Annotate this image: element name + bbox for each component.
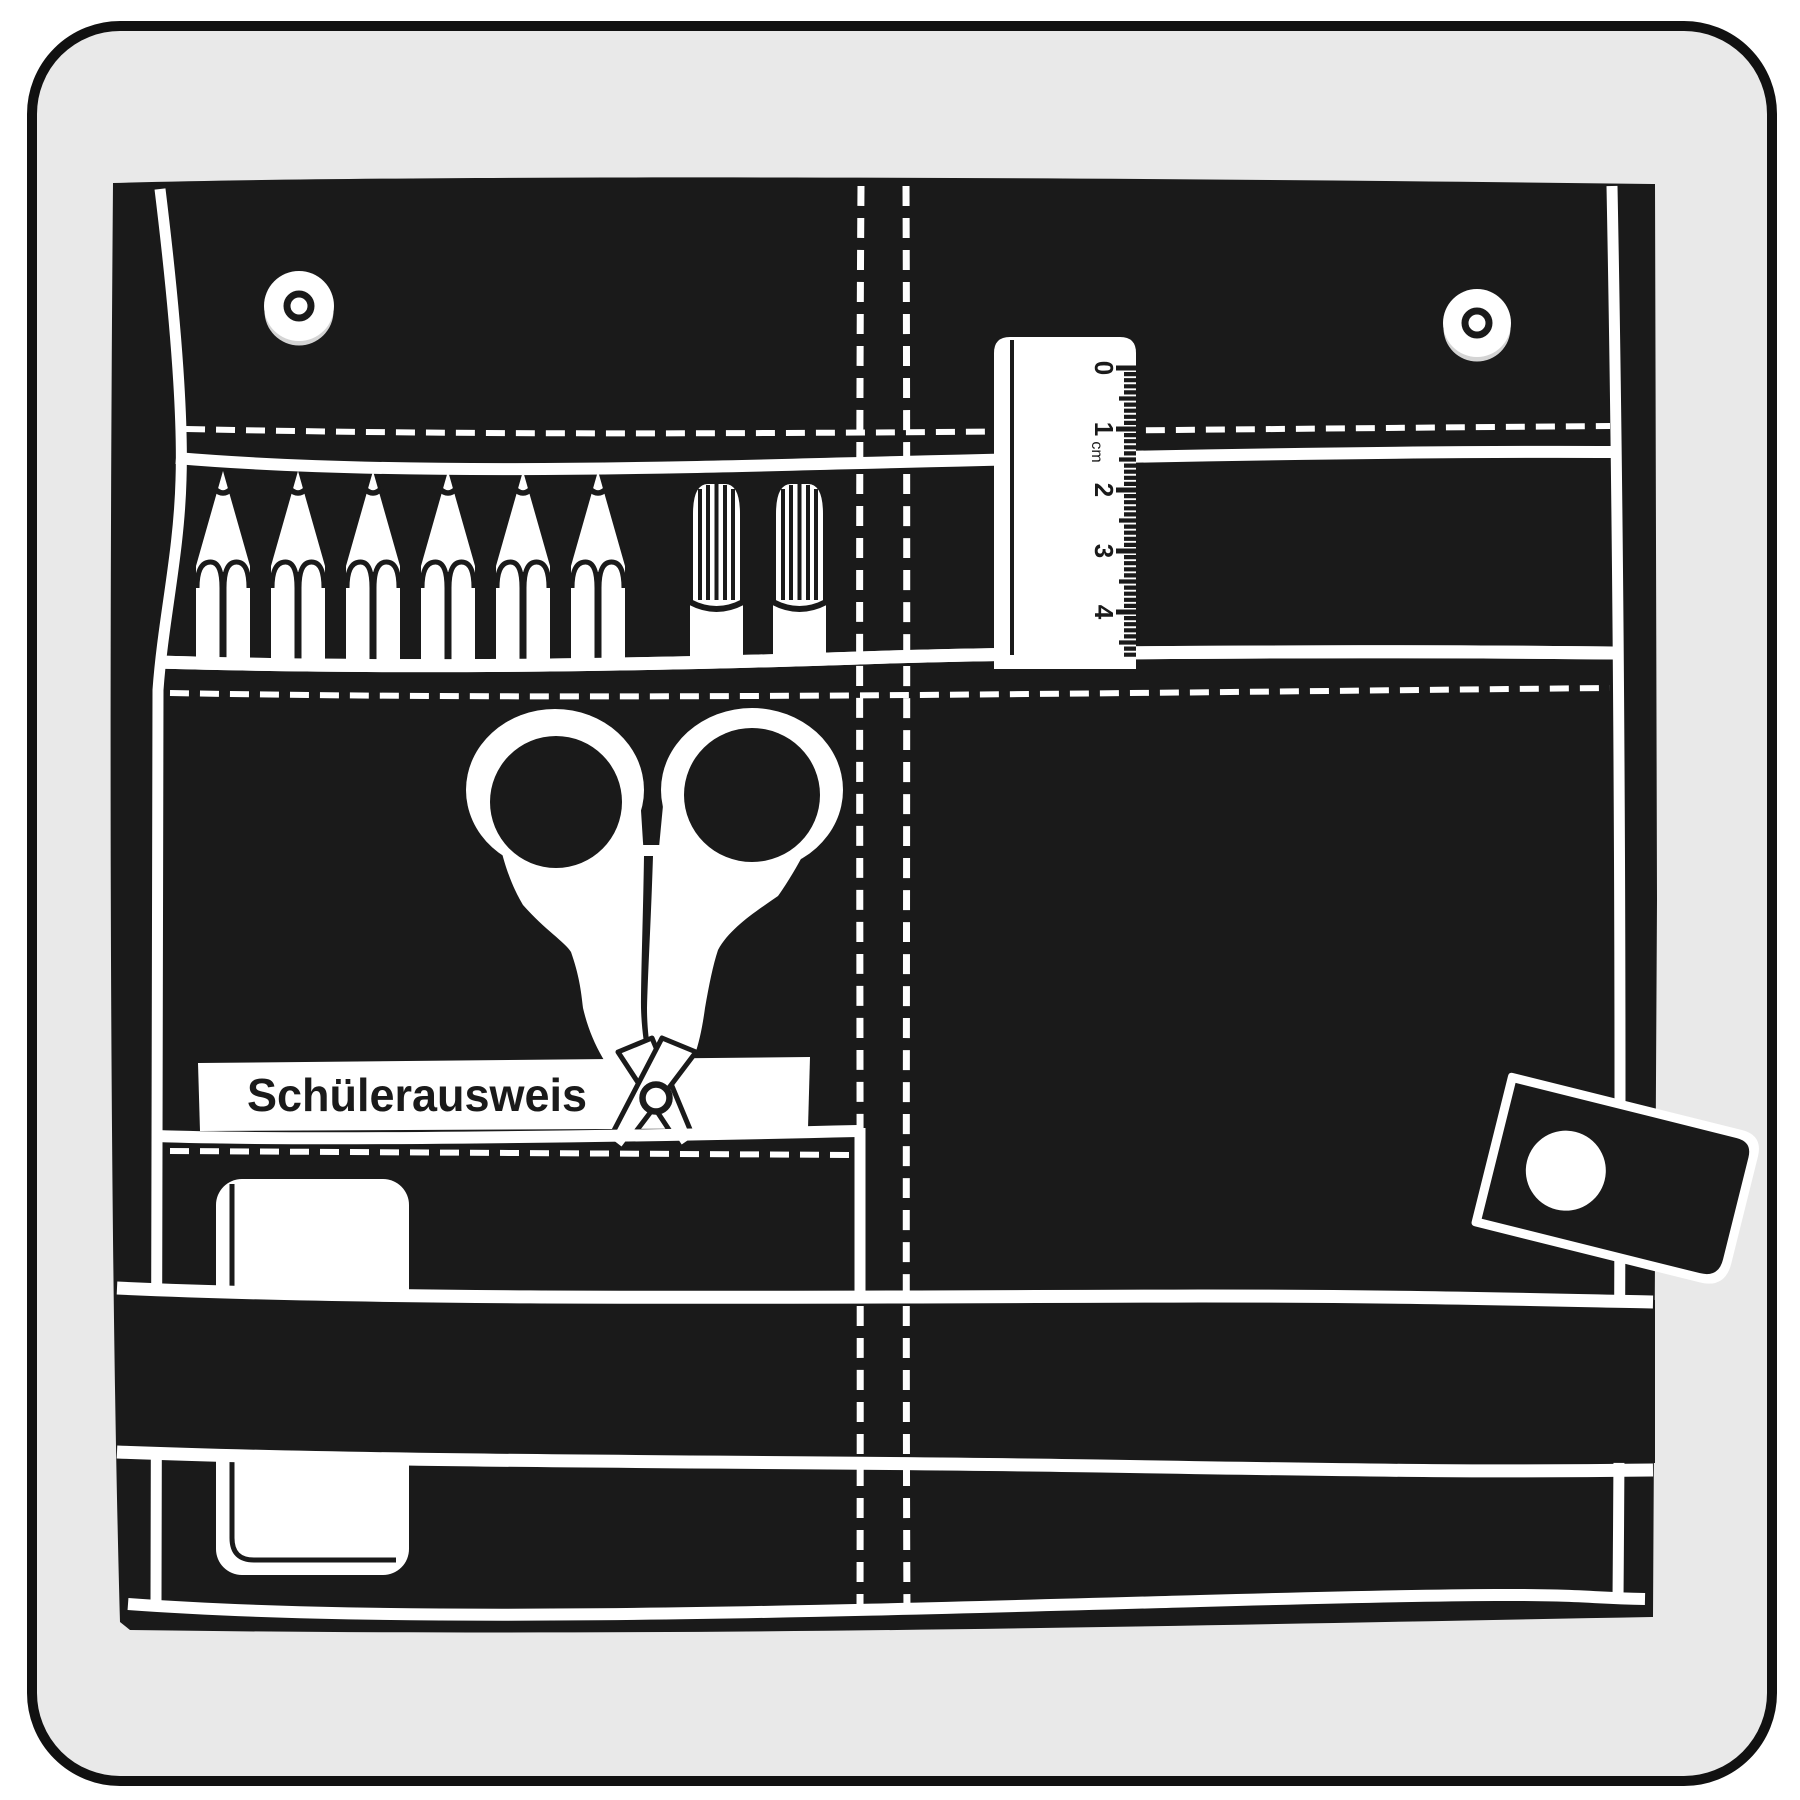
svg-text:4: 4 xyxy=(1089,605,1119,620)
svg-text:2: 2 xyxy=(1089,483,1119,497)
svg-text:3: 3 xyxy=(1089,544,1119,558)
svg-text:0: 0 xyxy=(1089,361,1119,375)
svg-text:Schülerausweis: Schülerausweis xyxy=(247,1069,587,1121)
svg-text:1: 1 xyxy=(1089,422,1119,436)
svg-text:cm: cm xyxy=(1088,441,1105,462)
